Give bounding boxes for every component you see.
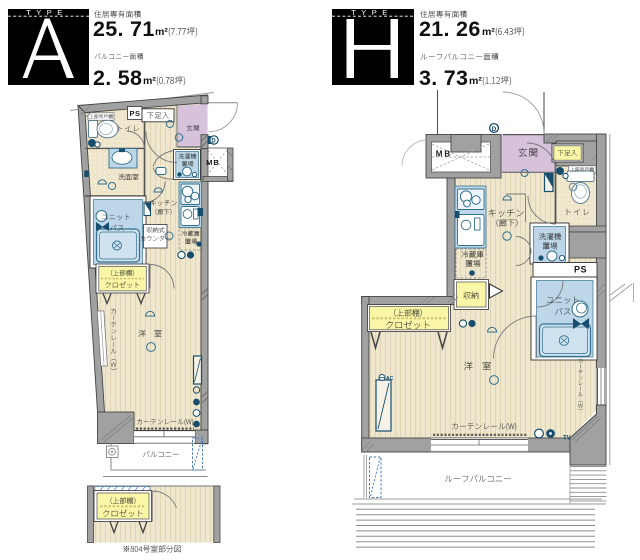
svg-text:m²: m² (143, 75, 156, 87)
svg-text:MB: MB (206, 158, 220, 167)
svg-text:2. 58: 2. 58 (93, 66, 142, 90)
svg-text:TV: TV (563, 436, 571, 442)
svg-text:21. 26: 21. 26 (419, 17, 481, 41)
svg-text:D: D (211, 139, 216, 145)
svg-text:m²: m² (482, 26, 495, 38)
svg-text:AC: AC (386, 376, 394, 382)
svg-text:MB: MB (436, 149, 452, 158)
svg-text:25. 71: 25. 71 (93, 17, 155, 41)
svg-text:m²: m² (155, 26, 168, 38)
svg-text:TYPE: TYPE (26, 8, 68, 17)
svg-text:PS: PS (574, 264, 587, 274)
svg-text:D: D (492, 126, 497, 133)
svg-text:3. 73: 3. 73 (419, 66, 468, 90)
svg-text:PS: PS (129, 109, 140, 118)
svg-text:TYPE: TYPE (351, 8, 393, 17)
svg-text:m²: m² (469, 75, 482, 87)
